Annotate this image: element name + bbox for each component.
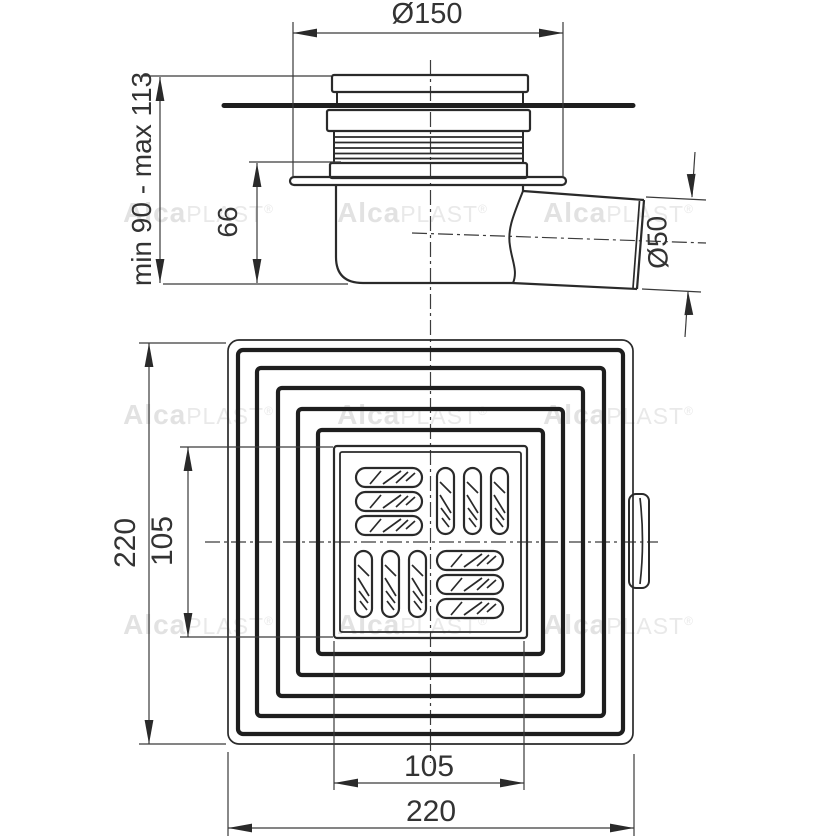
label-body-height: 66 <box>212 206 243 237</box>
label-grate-width: 105 <box>404 750 454 783</box>
watermark: AlcaPLAST® <box>123 609 273 640</box>
floor-drain-drawing: AlcaPLAST® AlcaPLAST® AlcaPLAST® AlcaPLA… <box>0 0 840 840</box>
upper-collar <box>327 110 530 131</box>
slots-top-left <box>356 468 422 535</box>
side-view: Ø150 min 90 - max 113 66 Ø50 <box>126 0 706 337</box>
side-view-dimensions <box>141 22 706 337</box>
label-overall-height: 220 <box>109 518 142 568</box>
watermark: AlcaPLAST® <box>543 609 693 640</box>
label-overall-width: 220 <box>406 795 456 828</box>
slots-bottom-left <box>355 551 426 617</box>
label-install-height: min 90 - max 113 <box>126 72 157 286</box>
corrugated-section <box>334 131 523 163</box>
watermark: AlcaPLAST® <box>543 399 693 430</box>
watermark: AlcaPLAST® <box>123 399 273 430</box>
slots-bottom-right <box>437 551 503 618</box>
label-top-diameter: Ø150 <box>392 0 463 30</box>
technical-drawing-page: AlcaPLAST® AlcaPLAST® AlcaPLAST® AlcaPLA… <box>0 0 840 840</box>
watermark: AlcaPLAST® <box>337 399 487 430</box>
slots-top-right <box>437 468 508 534</box>
side-tab <box>629 494 649 588</box>
watermark: AlcaPLAST® <box>337 197 487 228</box>
label-outlet-diameter: Ø50 <box>641 215 674 269</box>
grate-slots <box>355 468 508 618</box>
drain-body-outline <box>224 75 644 289</box>
label-grate-height: 105 <box>146 516 179 566</box>
lower-collar <box>330 163 527 178</box>
